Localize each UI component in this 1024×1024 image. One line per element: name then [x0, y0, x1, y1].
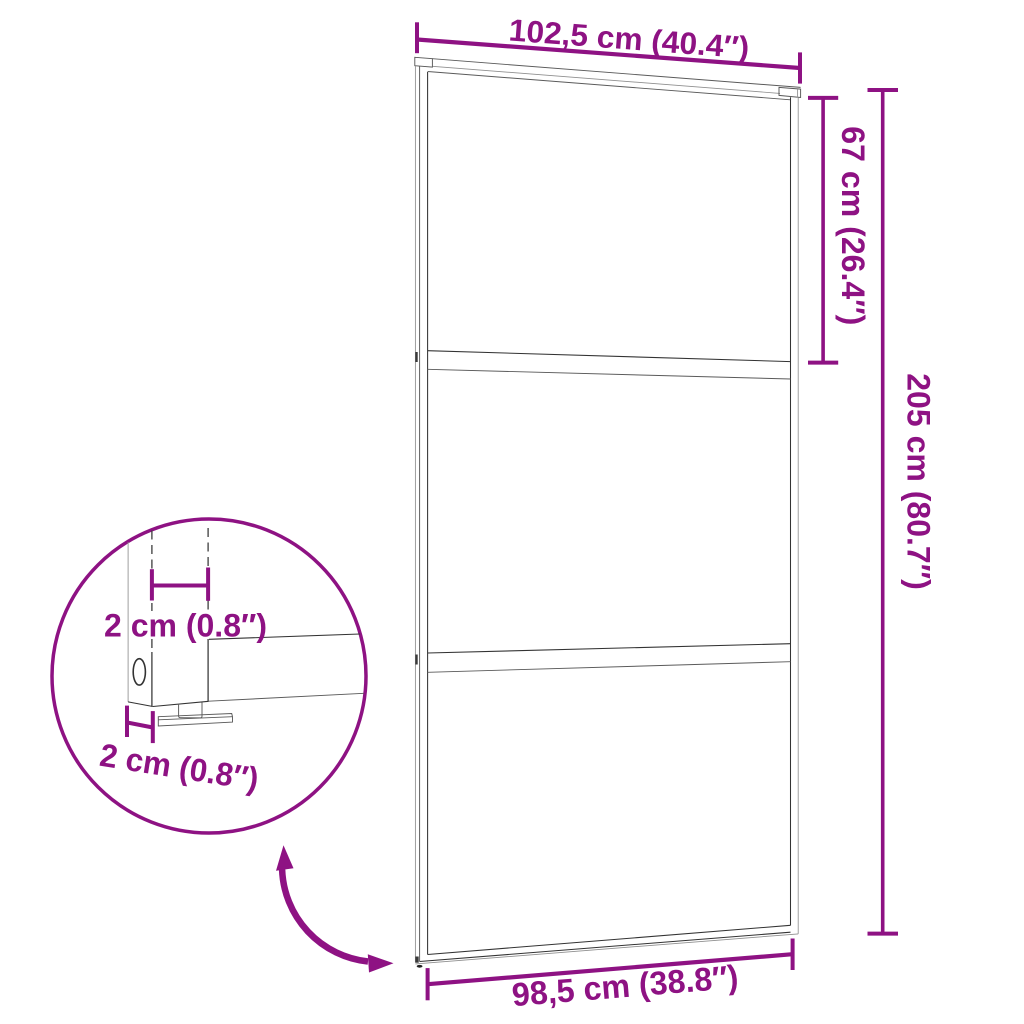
svg-text:205 cm (80.7″): 205 cm (80.7″) — [901, 373, 937, 590]
svg-text:67 cm (26.4″): 67 cm (26.4″) — [835, 126, 871, 325]
svg-text:2 cm (0.8″): 2 cm (0.8″) — [104, 608, 267, 644]
